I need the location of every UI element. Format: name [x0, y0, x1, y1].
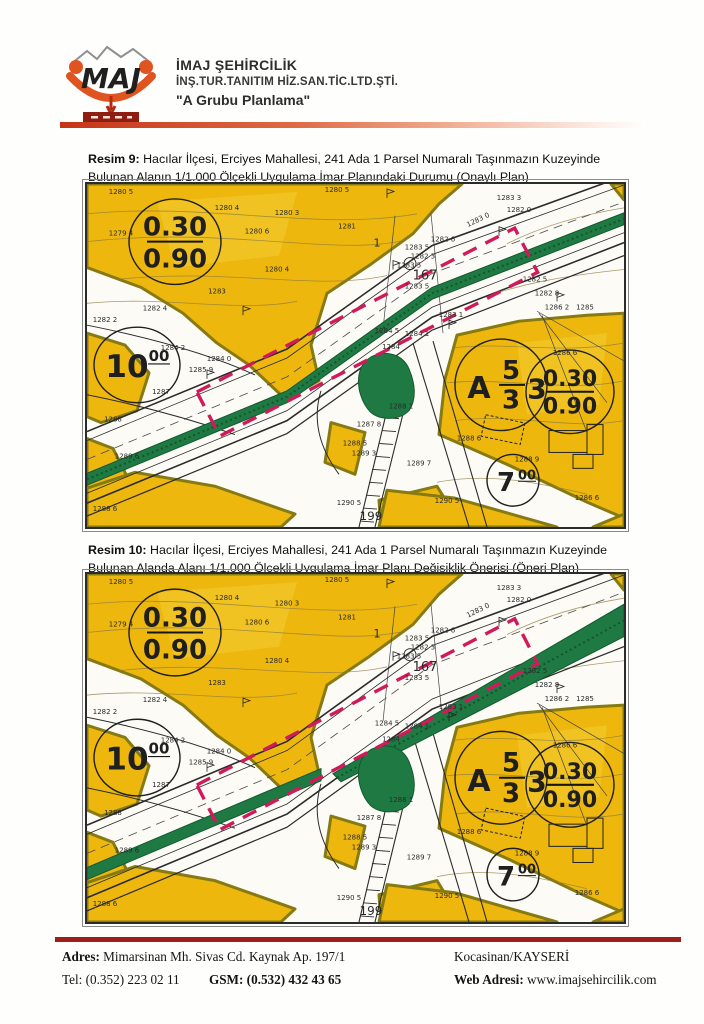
map-elevation-label: 1284 2 — [161, 735, 185, 744]
map-elevation-label: 1282 4 — [143, 304, 168, 312]
svg-text:3: 3 — [502, 386, 520, 416]
map-elevation-label: 1282 3 — [411, 253, 435, 261]
map-elevation-label: 1287 8 — [357, 421, 381, 429]
map-elevation-label: 1289 3 — [352, 449, 376, 457]
map-elevation-label: 1287 — [152, 780, 170, 789]
map-elevation-label: 1286 6 — [553, 740, 578, 749]
svg-text:A: A — [467, 764, 491, 799]
map-elevation-label: 1287 — [152, 388, 170, 396]
map-elevation-label: 1283 1 — [439, 702, 463, 711]
map-elevation-label: 1280 4 — [215, 204, 240, 212]
map-elevation-label: 1283 — [208, 678, 226, 687]
map-elevation-label: 1288 — [104, 416, 122, 424]
header-divider-bar — [60, 122, 646, 128]
map-elevation-label: 1288 6 — [93, 505, 117, 513]
map-elevation-label: 1281 — [338, 223, 356, 231]
svg-text:7: 7 — [497, 468, 515, 498]
map-elevation-label: 1290 5 — [337, 499, 361, 507]
map-elevation-label: 1284 5 — [375, 327, 399, 335]
map-elevation-label: 1282 4 — [143, 695, 168, 704]
svg-text:0.30: 0.30 — [543, 367, 597, 392]
svg-text:5: 5 — [502, 356, 520, 386]
map-elevation-label: 1288 1 — [389, 403, 413, 411]
map-elevation-label: 1283 3 — [497, 583, 521, 592]
map-elevation-label: 1280 6 — [245, 617, 270, 626]
zoning-plan-drawing: 0.30 0.90 10 00 A 5 3 3 0.30 0.90 7 00 1… — [87, 574, 624, 922]
map-elevation-label: 1282 0 — [507, 206, 531, 214]
footer-phones: Tel: (0.352) 223 02 11 GSM: (0.532) 432 … — [62, 972, 454, 988]
map-resim-10-proposal-plan: 0.30 0.90 10 00 A 5 3 3 0.30 0.90 7 00 1… — [85, 572, 626, 924]
web-value: www.imajsehircilik.com — [527, 972, 657, 987]
map-elevation-label: 1285 9 — [189, 366, 213, 374]
map-elevation-label: 1280 5 — [109, 188, 133, 196]
map-elevation-label: 1286 6 — [553, 349, 577, 357]
map-elevation-label: 1280 4 — [265, 266, 290, 274]
map-elevation-label: 199 — [360, 904, 383, 918]
footer-city: Kocasinan/KAYSERİ — [454, 949, 672, 965]
svg-text:10: 10 — [105, 349, 148, 385]
svg-text:0.90: 0.90 — [143, 636, 207, 666]
map-elevation-label: 1281 — [338, 612, 356, 621]
map-elevation-label: 1280 4 — [215, 593, 240, 602]
map-elevation-label: 1285 — [576, 694, 594, 703]
map-elevation-label: 1288 6 — [93, 899, 118, 908]
map-elevation-label: 1286 6 — [575, 888, 600, 897]
gsm-value: (0.532) 432 43 65 — [247, 972, 342, 987]
svg-text:0.30: 0.30 — [143, 603, 207, 633]
map-elevation-label: 1282 2 — [93, 707, 117, 716]
map-elevation-label: 1286 2 — [545, 303, 569, 311]
zoning-plan-drawing: 0.30 0.90 10 00 A 5 3 3 0.30 0.90 7 00 1… — [87, 184, 624, 527]
footer-divider-bar — [55, 937, 681, 942]
map-elevation-label: 1284 0 — [207, 355, 231, 363]
map-elevation-label: 1288 6 — [457, 827, 482, 836]
map-elevation-label: 1286 6 — [575, 494, 599, 502]
figure-9-label: Resim 9: — [88, 152, 140, 166]
map-elevation-label: 1288 — [104, 808, 122, 817]
map-elevation-label: 1282 8 — [535, 289, 559, 297]
map-elevation-label: 1282 0 — [507, 595, 531, 604]
footer-address: Adres: Mimarsinan Mh. Sivas Cd. Kaynak A… — [62, 949, 454, 965]
map-elevation-label: 1282 2 — [93, 316, 117, 324]
company-subtitle: İNŞ.TUR.TANITIM HİZ.SAN.TİC.LTD.ŞTİ. — [176, 76, 596, 88]
map-elevation-label: 1282 3 — [411, 643, 435, 652]
map-elevation-label: 1282 6 — [431, 236, 455, 244]
svg-text:7: 7 — [497, 863, 515, 893]
map-elevation-label: 1285 — [576, 303, 594, 311]
map-elevation-label: 1289 6 — [115, 845, 140, 854]
tel-value: (0.352) 223 02 11 — [86, 972, 180, 987]
map-elevation-label: 1282 5 — [523, 666, 547, 675]
gsm-label: GSM: — [209, 972, 243, 987]
company-tagline: "A Grubu Planlama" — [176, 92, 596, 108]
logo-figure-right-head — [139, 60, 153, 74]
map-elevation-label: 1289 6 — [115, 452, 139, 460]
map-elevation-label: 1280 5 — [109, 577, 133, 586]
company-logo: MAJ — [60, 44, 162, 128]
figure-9-text: Hacılar İlçesi, Erciyes Mahallesi, 241 A… — [88, 152, 600, 184]
map-elevation-label: 1280 5 — [325, 575, 349, 584]
map-elevation-label: 1284 2 — [161, 344, 185, 352]
map-elevation-label: 1282 6 — [431, 625, 456, 634]
map-elevation-label: 1280 4 — [265, 656, 290, 665]
address-value: Mimarsinan Mh. Sivas Cd. Kaynak Ap. 197/… — [103, 949, 345, 964]
map-elevation-label: 1279 4 — [109, 619, 134, 628]
map-resim-9-approved-plan: 0.30 0.90 10 00 A 5 3 3 0.30 0.90 7 00 1… — [85, 182, 626, 529]
map-elevation-label: 1290 5 — [435, 891, 459, 900]
map-elevation-label: 1290 5 — [435, 497, 459, 505]
map-elevation-label: 1288 6 — [457, 435, 481, 443]
map-elevation-label: 1288 9 — [515, 848, 539, 857]
company-name: İMAJ ŞEHİRCİLİK — [176, 57, 596, 73]
svg-text:0.30: 0.30 — [143, 213, 207, 243]
map-elevation-label: 1280 3 — [275, 598, 299, 607]
map-elevation-label: 1284 0 — [207, 747, 231, 756]
map-elevation-label: 1284 — [382, 343, 400, 351]
map-elevation-label: 1288 9 — [515, 455, 539, 463]
company-header: İMAJ ŞEHİRCİLİK İNŞ.TUR.TANITIM HİZ.SAN.… — [176, 57, 596, 108]
map-elevation-label: 1280 5 — [325, 186, 349, 194]
map-elevation-label: 1289 7 — [407, 459, 431, 467]
map-elevation-label: 1290 5 — [337, 893, 361, 902]
map-elevation-label: 199 — [360, 509, 383, 523]
address-label: Adres: — [62, 949, 100, 964]
footer: Adres: Mimarsinan Mh. Sivas Cd. Kaynak A… — [62, 949, 672, 988]
logo-text: MAJ — [81, 62, 141, 95]
map-elevation-label: 1283 — [208, 287, 226, 295]
map-elevation-label: 1288 1 — [389, 795, 413, 804]
map-elevation-label: 1286 2 — [545, 694, 569, 703]
svg-text:0.90: 0.90 — [543, 395, 597, 420]
map-elevation-label: 1283 1 — [439, 311, 463, 319]
figure-10-text: Hacılar İlçesi, Erciyes Mahallesi, 241 A… — [88, 543, 607, 575]
map-elevation-label: 1284 5 — [375, 718, 399, 727]
map-elevation-label: 1283 5 — [405, 282, 429, 290]
svg-text:A: A — [467, 371, 490, 406]
map-elevation-label: 1284 1 — [405, 721, 429, 730]
figure-10-label: Resim 10: — [88, 543, 147, 557]
map-elevation-label: 1282 5 — [523, 275, 547, 283]
map-elevation-label: 1285 9 — [189, 758, 213, 767]
svg-text:10: 10 — [105, 742, 148, 778]
svg-text:5: 5 — [502, 749, 520, 779]
web-label: Web Adresi: — [454, 972, 524, 987]
map-elevation-label: 1283 5 — [405, 634, 429, 643]
map-elevation-label: 1279 4 — [109, 230, 134, 238]
map-elevation-label: 1287 8 — [357, 813, 381, 822]
map-elevation-label: 1288 5 — [343, 439, 367, 447]
svg-text:3: 3 — [502, 779, 520, 809]
map-elevation-label: 1 — [374, 237, 381, 250]
map-elevation-label: 1282 8 — [535, 680, 559, 689]
map-elevation-label: 1283 5 — [405, 244, 429, 252]
footer-web: Web Adresi: www.imajsehircilik.com — [454, 972, 672, 988]
map-elevation-label: 1 — [373, 628, 380, 641]
map-elevation-label: 167 — [413, 660, 438, 675]
map-elevation-label: 1284 1 — [405, 330, 429, 338]
svg-text:0.90: 0.90 — [543, 787, 597, 813]
map-elevation-label: 1284 — [382, 734, 400, 743]
tel-label: Tel: — [62, 972, 82, 987]
map-elevation-label: 1288 5 — [343, 832, 367, 841]
map-elevation-label: 167 — [413, 268, 438, 283]
svg-text:0.90: 0.90 — [143, 245, 207, 275]
map-elevation-label: 1283 3 — [497, 194, 521, 202]
map-elevation-label: 1289 3 — [352, 842, 376, 851]
map-elevation-label: 1280 3 — [275, 209, 299, 217]
svg-text:0.30: 0.30 — [543, 759, 597, 785]
map-elevation-label: 1289 7 — [407, 852, 431, 861]
map-elevation-label: 1280 6 — [245, 228, 269, 236]
